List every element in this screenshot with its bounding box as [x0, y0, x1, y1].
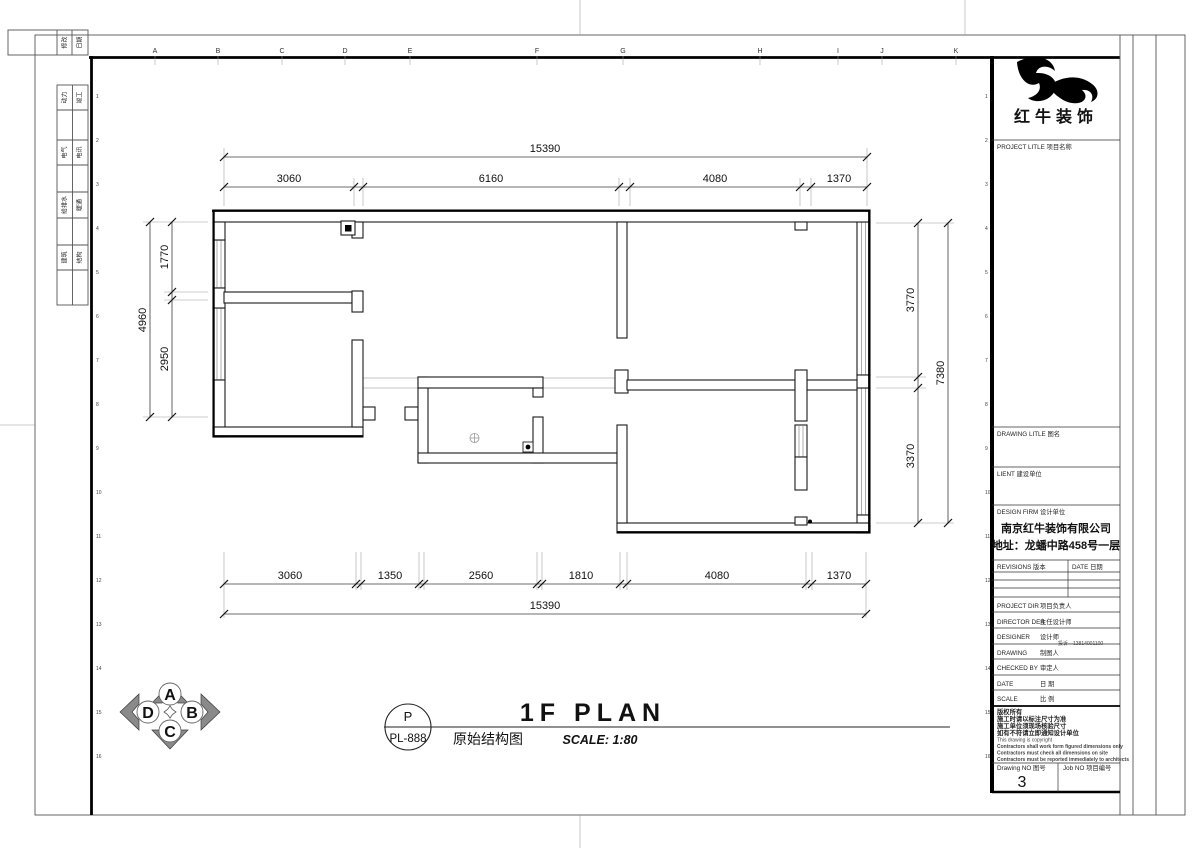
grid-letter: G — [620, 48, 625, 55]
grid-number: 1 — [985, 94, 988, 100]
reference-code: PL-888 — [389, 733, 426, 745]
dim-bottom-seg: 2560 — [469, 570, 493, 582]
grid-number: 8 — [96, 402, 99, 408]
copyright-line: Contractors must check all dimensions on… — [997, 751, 1108, 757]
revisions-label: REVISIONS 版本 — [997, 562, 1046, 571]
grid-numbers-right: 1 2 3 4 5 6 7 8 9 10 11 12 13 14 15 16 — [985, 94, 991, 760]
grid-number: 15 — [96, 710, 102, 716]
redniu-logo — [1017, 57, 1098, 103]
window-right-1 — [857, 222, 870, 375]
grid-letter: A — [153, 48, 158, 55]
wall-left-pier — [213, 222, 225, 240]
grid-number: 9 — [96, 446, 99, 452]
staff-cn: 设计师 — [1040, 632, 1059, 641]
floor-drain-icon — [470, 433, 480, 443]
compass-letter-c: C — [164, 724, 176, 741]
grid-number: 3 — [985, 182, 988, 188]
window-right-2 — [857, 388, 870, 515]
grid-number: 5 — [96, 270, 99, 276]
dim-top-seg: 4080 — [703, 173, 727, 185]
dim-bottom-seg: 4080 — [705, 570, 729, 582]
grid-letter: C — [279, 48, 284, 55]
grid-number: 12 — [985, 578, 991, 584]
client-label: LIENT 建设单位 — [997, 469, 1042, 478]
staff-en: DIRECTOR DER — [997, 619, 1045, 626]
grid-number: 14 — [985, 666, 991, 672]
dim-top-seg: 1370 — [827, 173, 851, 185]
plan-title-en: 1F PLAN — [520, 699, 666, 727]
dim-top-seg: 3060 — [277, 173, 301, 185]
grid-letter: I — [837, 48, 839, 55]
door-pier — [405, 407, 418, 420]
design-firm-label: DESIGN FIRM 设计单位 — [997, 507, 1066, 516]
title-block: 红牛装饰 PROJECT LITLE 项目名称 DRAWING LITLE 图名… — [992, 56, 1129, 793]
copyright-line: This drawing is copyright — [997, 738, 1053, 744]
grid-letter: D — [342, 48, 347, 55]
grid-number: 16 — [985, 754, 991, 760]
dim-right-seg: 3370 — [905, 444, 917, 468]
grid-number: 2 — [985, 138, 988, 144]
staff-en: SCALE — [997, 696, 1018, 703]
wall-interior-h2 — [627, 380, 795, 390]
door-pier — [363, 407, 375, 420]
grid-number: 5 — [985, 270, 988, 276]
signoff-label: 修改 — [61, 36, 69, 48]
copyright-line: Contractors shall work form figured dime… — [997, 744, 1123, 750]
dim-left-seg: 1770 — [159, 245, 171, 269]
staff-en: PROJECT DIR — [997, 603, 1039, 610]
grid-letter: J — [880, 48, 884, 55]
dim-right-total: 7380 — [935, 361, 947, 385]
window-interior — [795, 425, 807, 457]
grid-letter: F — [535, 48, 539, 55]
revisions-date-label: DATE 日期 — [1072, 563, 1103, 571]
dim-top-total: 15390 — [530, 143, 561, 155]
floor-plan — [212, 210, 871, 533]
point-marker — [808, 520, 812, 524]
grid-number: 12 — [96, 578, 102, 584]
design-firm-name: 南京红牛装饰有限公司 — [1001, 521, 1111, 535]
outlet-icon — [523, 442, 533, 452]
grid-number: 7 — [96, 358, 99, 364]
drawing-no-label: Drawing NO 图号 — [997, 764, 1046, 772]
wall-interior-h2 — [807, 380, 857, 390]
window-left-2 — [213, 308, 225, 380]
dim-bottom-seg: 3060 — [278, 570, 302, 582]
grid-number: 2 — [96, 138, 99, 144]
compass-center-icon — [164, 706, 176, 718]
grid-number: 11 — [985, 534, 990, 540]
drawing-no-value: 3 — [1018, 774, 1027, 791]
staff-en: DRAWING — [997, 650, 1027, 657]
dim-bottom-seg: 1810 — [569, 570, 593, 582]
wall-pier — [615, 370, 628, 393]
reference-top: P — [404, 709, 413, 724]
compass-letter-d: D — [142, 705, 154, 722]
dim-right-seg: 3770 — [905, 288, 917, 312]
dim-bottom-seg: 1370 — [827, 570, 851, 582]
dim-top-seg: 6160 — [479, 173, 503, 185]
dim-bottom-seg: 1350 — [378, 570, 402, 582]
flue-symbol — [341, 221, 355, 235]
grid-number: 3 — [96, 182, 99, 188]
grid-letter: E — [408, 48, 413, 55]
grid-number: 4 — [96, 226, 99, 232]
dim-bottom-total: 15390 — [530, 600, 561, 612]
window-left-1 — [213, 240, 225, 288]
wall-right-pier — [857, 375, 870, 388]
discipline-label: 暖通 — [76, 199, 84, 211]
staff-cn: 审定人 — [1040, 663, 1060, 672]
discipline-label: 结构 — [76, 251, 84, 263]
staff-cn: 制图人 — [1040, 648, 1060, 657]
bathroom-walls — [418, 377, 617, 463]
dim-left-total: 4960 — [137, 308, 149, 332]
grid-number: 7 — [985, 358, 988, 364]
discipline-label: 给排水 — [61, 196, 69, 214]
niche-symbol — [795, 222, 807, 230]
grid-letter: K — [954, 48, 959, 55]
grid-number: 9 — [985, 446, 988, 452]
wall-cap — [352, 291, 363, 312]
copyright-line: 版权所有 — [996, 707, 1023, 716]
signoff-header-box — [8, 30, 88, 55]
staff-phone: 投诉—13814001100 — [1058, 640, 1103, 647]
discipline-label: 动力 — [61, 91, 69, 103]
compass-letter-a: A — [164, 687, 176, 704]
wall-interior-v2 — [617, 425, 627, 523]
job-no-label: Job NO 项目编号 — [1063, 763, 1111, 772]
wall-left-pier — [213, 288, 225, 308]
grid-number: 10 — [985, 490, 991, 496]
grid-number: 1 — [96, 94, 99, 100]
grid-number: 6 — [985, 314, 988, 320]
wall-interior-v1 — [352, 340, 363, 427]
compass-arrow-right — [201, 694, 220, 730]
grid-number: 13 — [985, 622, 991, 628]
dim-left-seg: 2950 — [159, 347, 171, 371]
plan-scale: SCALE: 1:80 — [562, 733, 637, 747]
copyright-line: 如有不符请立即通知设计单位 — [997, 728, 1080, 737]
wall-interior-v3 — [795, 457, 807, 490]
signoff-strip: 修改 日期 动力 竣工 电气 电讯 给排水 暖通 建筑 结构 — [8, 30, 88, 305]
drawing-title-bar: P PL-888 1F PLAN 原始结构图 SCALE: 1:80 — [384, 699, 950, 750]
signoff-label: 日期 — [76, 36, 84, 48]
grid-number: 8 — [985, 402, 988, 408]
wall-interior-h1 — [224, 292, 352, 303]
grid-number: 14 — [96, 666, 102, 672]
staff-cn: 项目负责人 — [1040, 601, 1072, 610]
grid-letter: H — [757, 48, 762, 55]
discipline-label: 电气 — [61, 146, 69, 158]
company-name: 红牛装饰 — [1014, 107, 1098, 126]
copyright-line: 施工时请以标注尺寸为准 — [997, 714, 1067, 723]
grid-numbers-left: 1 2 3 4 5 6 7 8 9 10 11 12 13 14 15 16 — [96, 94, 102, 760]
staff-en: CHECKED BY — [997, 665, 1039, 672]
grid-number: 16 — [96, 754, 102, 760]
copyright-line: Contractors must be reported immediately… — [997, 757, 1129, 763]
compass-letter-b: B — [186, 705, 198, 722]
orientation-compass: A B C D — [120, 683, 220, 749]
discipline-label: 建筑 — [61, 251, 69, 263]
staff-cn: 比 例 — [1040, 694, 1054, 703]
staff-en: DESIGNER — [997, 634, 1030, 641]
grid-number: 10 — [96, 490, 102, 496]
grid-letter: B — [216, 48, 221, 55]
grid-number: 6 — [96, 314, 99, 320]
staff-en: DATE — [997, 681, 1013, 688]
grid-number: 11 — [96, 534, 101, 540]
wall-interior-v2-stub — [617, 222, 627, 338]
compass-arrow-left — [120, 694, 139, 730]
grid-number: 13 — [96, 622, 102, 628]
copyright-line: 施工单位须现场核验尺寸 — [997, 721, 1067, 730]
staff-cn: 日 期 — [1040, 680, 1054, 688]
discipline-label: 竣工 — [76, 91, 84, 103]
drawing-title-label: DRAWING LITLE 图名 — [997, 429, 1060, 438]
plan-title-cn: 原始结构图 — [453, 731, 523, 747]
wall-pier — [795, 370, 807, 421]
staff-cn: 主任设计师 — [1040, 617, 1071, 626]
project-title-label: PROJECT LITLE 项目名称 — [997, 142, 1072, 151]
design-firm-address: 地址：龙蟠中路458号一层 — [992, 538, 1120, 552]
grid-number: 4 — [985, 226, 988, 232]
discipline-label: 电讯 — [76, 146, 84, 158]
door-notch — [795, 517, 807, 525]
footer: A B C D P PL-888 1F PLAN 原始结构图 SCALE: 1:… — [120, 683, 950, 750]
drawing-sheet: A B C D E F G H I J K 1 2 3 4 5 6 7 — [0, 0, 1200, 848]
grid-number: 15 — [985, 710, 991, 716]
